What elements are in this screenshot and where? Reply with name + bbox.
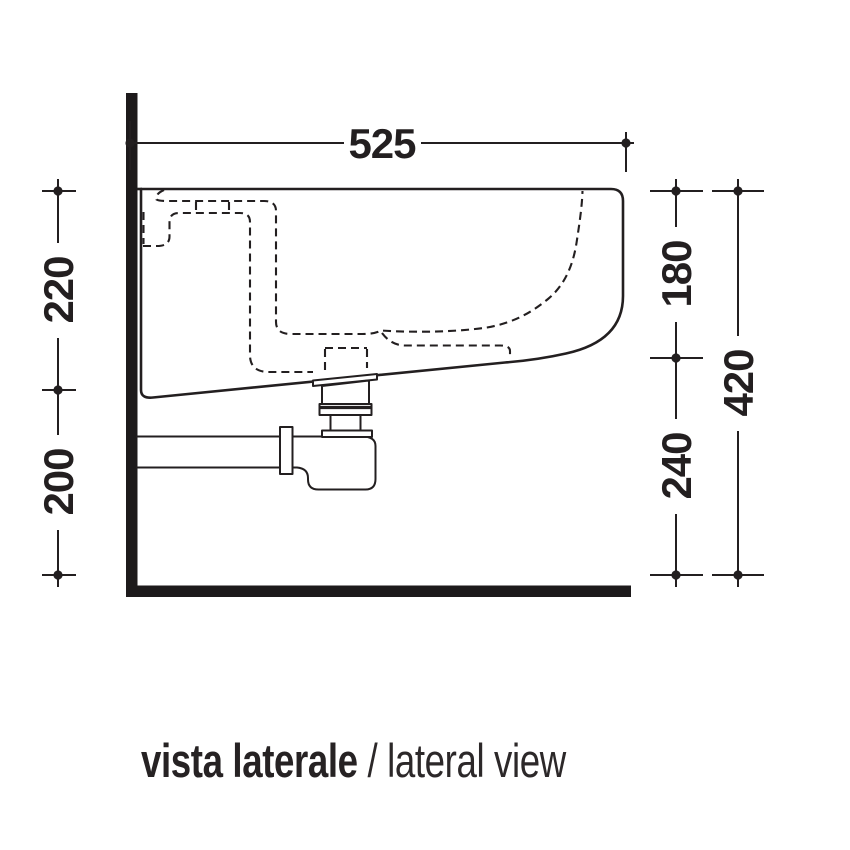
dim-label-top-width: 525 — [348, 120, 416, 167]
caption-italian: vista laterale — [141, 734, 358, 787]
caption: vista laterale / lateral view — [141, 735, 566, 787]
drain-neck — [331, 415, 361, 431]
technical-drawing-page: 525 220 200 180 240 420 vista laterale /… — [0, 0, 850, 850]
trap-body — [292, 437, 376, 490]
dim-marker — [733, 570, 742, 579]
dim-marker — [671, 353, 680, 362]
caption-separator: / — [358, 734, 387, 787]
dimension-line-right-inner — [650, 179, 703, 587]
lateral-view-diagram: 525 220 200 180 240 420 — [0, 0, 850, 850]
basin-outline-group — [137, 189, 623, 398]
waste-pipe — [136, 437, 292, 468]
dim-label-right-upper: 180 — [653, 240, 700, 307]
dim-marker — [125, 138, 134, 147]
dimension-line-left — [42, 179, 76, 587]
dim-marker — [671, 186, 680, 195]
dim-marker — [53, 186, 62, 195]
dim-marker — [53, 570, 62, 579]
basin-outline — [141, 189, 623, 398]
dim-marker — [53, 385, 62, 394]
drain-collar — [322, 431, 372, 438]
dim-label-left-lower: 200 — [35, 448, 82, 515]
caption-english: lateral view — [387, 734, 566, 787]
dim-marker — [621, 138, 630, 147]
dim-label-left-upper: 220 — [35, 256, 82, 323]
dim-marker — [671, 570, 680, 579]
pipe-nut — [280, 427, 293, 474]
drain-ring — [320, 404, 372, 415]
dim-marker — [733, 186, 742, 195]
dim-label-right-lower: 240 — [653, 432, 700, 499]
dim-label-right-total: 420 — [715, 349, 762, 416]
